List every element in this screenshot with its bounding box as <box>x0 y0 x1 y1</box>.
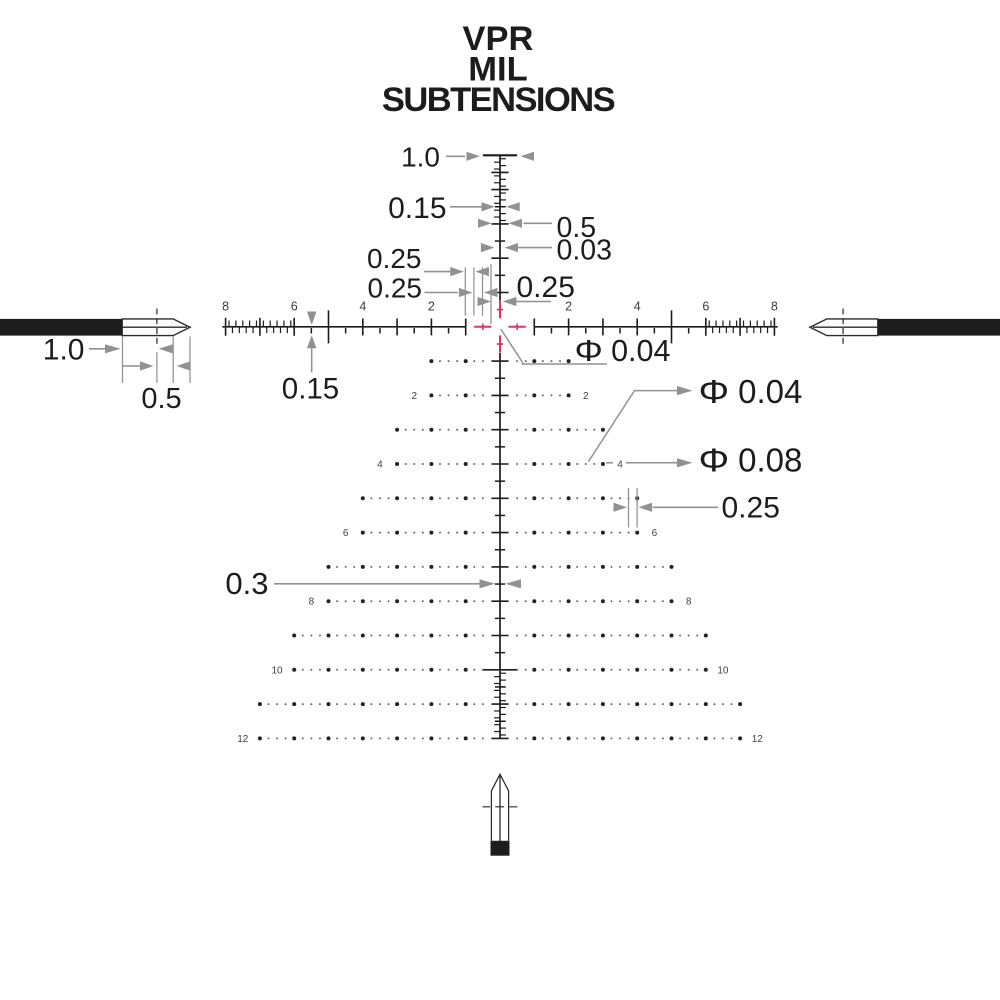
svg-text:Φ0.08: Φ0.08 <box>699 442 803 479</box>
svg-text:1.0: 1.0 <box>401 142 440 173</box>
svg-text:2: 2 <box>411 391 417 402</box>
svg-text:0.3: 0.3 <box>225 566 268 601</box>
svg-text:4: 4 <box>377 460 383 471</box>
svg-text:1.0: 1.0 <box>43 334 85 367</box>
svg-text:8: 8 <box>686 597 692 608</box>
svg-text:10: 10 <box>717 665 729 676</box>
svg-text:0.5: 0.5 <box>141 383 181 415</box>
svg-text:4: 4 <box>617 460 623 471</box>
svg-text:2: 2 <box>428 300 435 314</box>
svg-text:6: 6 <box>343 528 349 539</box>
svg-text:Φ0.04: Φ0.04 <box>575 334 671 368</box>
svg-text:6: 6 <box>702 300 709 314</box>
svg-text:8: 8 <box>222 300 229 314</box>
svg-text:12: 12 <box>237 734 249 745</box>
svg-text:0.03: 0.03 <box>557 235 612 267</box>
svg-text:0.15: 0.15 <box>282 373 339 406</box>
svg-text:2: 2 <box>583 391 589 402</box>
svg-text:10: 10 <box>271 665 283 676</box>
svg-text:12: 12 <box>752 734 764 745</box>
svg-text:0.25: 0.25 <box>517 271 575 304</box>
svg-text:8: 8 <box>309 597 315 608</box>
svg-text:SUBTENSIONS: SUBTENSIONS <box>382 81 615 119</box>
svg-text:0.25: 0.25 <box>368 273 423 304</box>
svg-text:6: 6 <box>652 528 658 539</box>
svg-text:4: 4 <box>634 300 641 314</box>
svg-text:Φ0.04: Φ0.04 <box>699 373 803 410</box>
svg-text:4: 4 <box>359 300 366 314</box>
svg-text:8: 8 <box>771 300 778 314</box>
svg-text:0.25: 0.25 <box>367 243 422 274</box>
svg-text:0.25: 0.25 <box>722 492 780 525</box>
svg-text:0.15: 0.15 <box>388 192 446 225</box>
svg-text:6: 6 <box>291 300 298 314</box>
